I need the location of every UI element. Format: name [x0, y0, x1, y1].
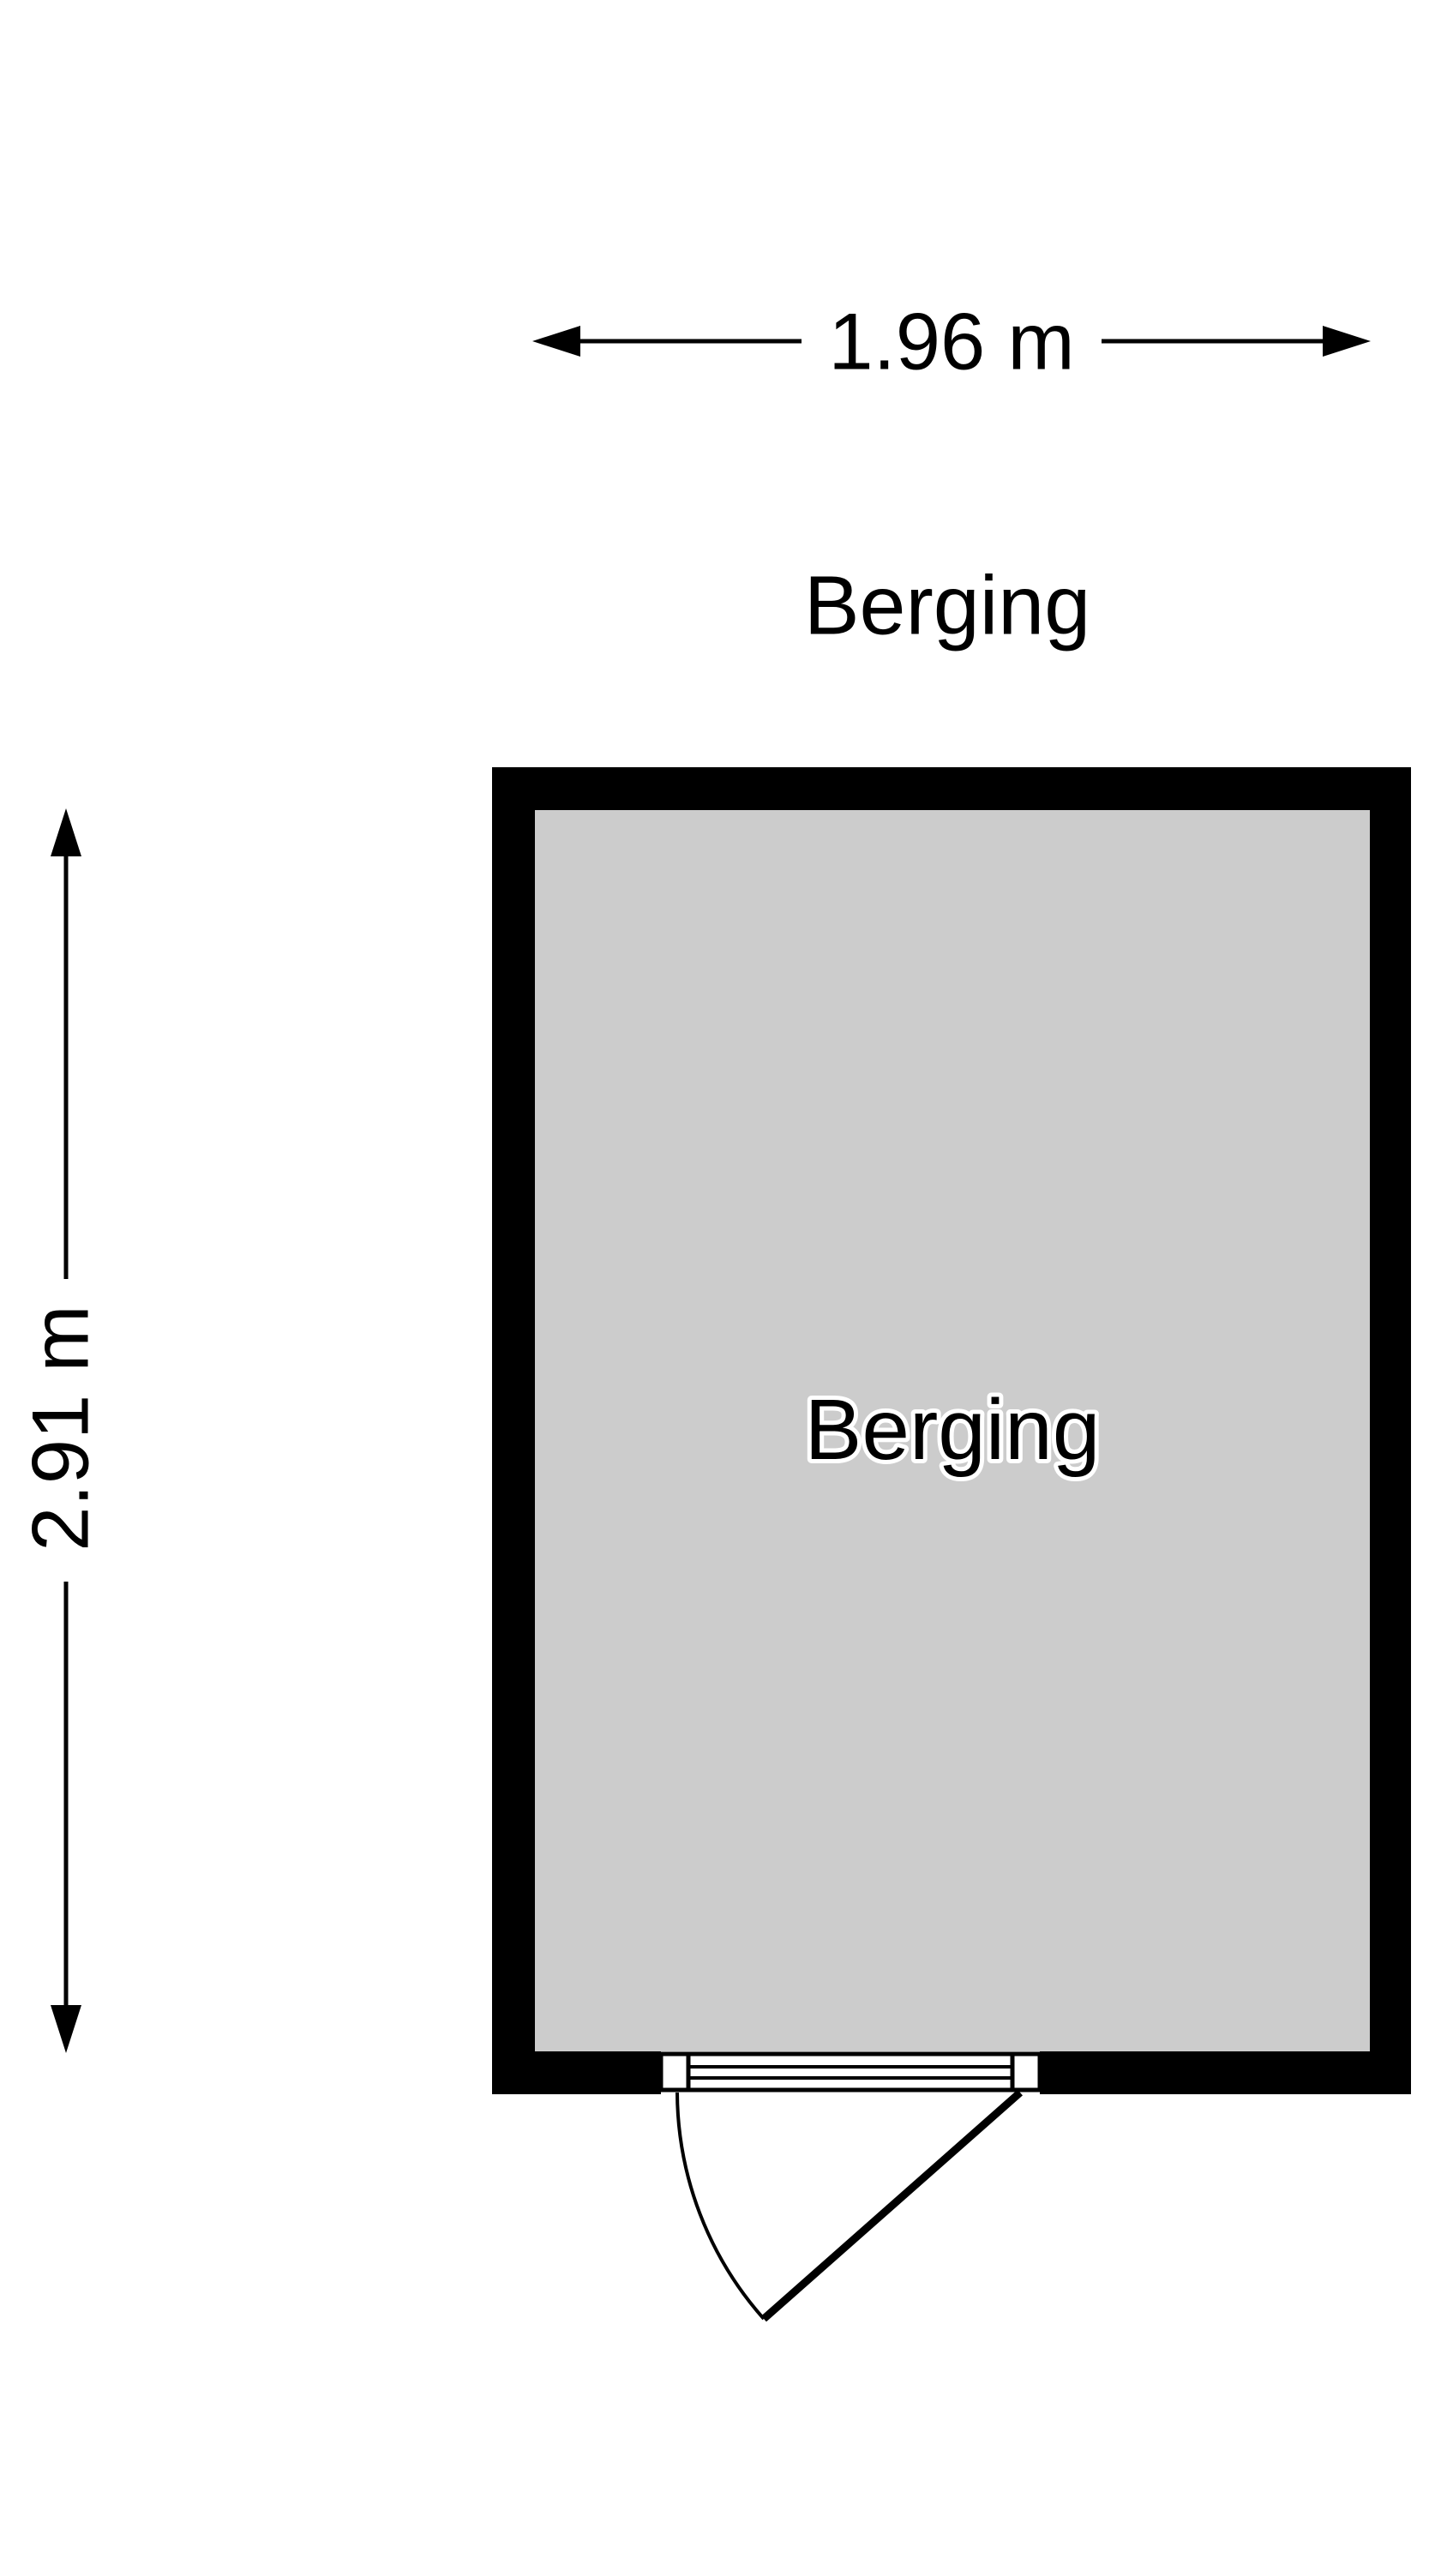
- arrow-left-icon: [532, 326, 580, 357]
- door-leaf-icon: [764, 2093, 1020, 2319]
- door-jamb-left: [661, 2054, 688, 2090]
- room-label: Berging: [805, 1382, 1101, 1478]
- arrow-right-icon: [1323, 326, 1371, 357]
- width-dimension-label: 1.96 m: [828, 297, 1074, 387]
- door-swing-arc-icon: [677, 2093, 764, 2319]
- width-dimension: 1.96 m: [532, 297, 1371, 387]
- door: [661, 2051, 1040, 2319]
- plan-title: Berging: [804, 559, 1090, 652]
- floor-plan: 1.96 m Berging Berging 2.91 m: [0, 0, 1447, 2572]
- height-dimension-label: 2.91 m: [15, 1305, 105, 1551]
- height-dimension: 2.91 m: [15, 808, 105, 2053]
- arrow-down-icon: [51, 2005, 81, 2053]
- floor-plan-drawing: 1.96 m Berging Berging 2.91 m: [0, 0, 1447, 2572]
- arrow-up-icon: [51, 808, 81, 856]
- door-jamb-right: [1012, 2054, 1040, 2090]
